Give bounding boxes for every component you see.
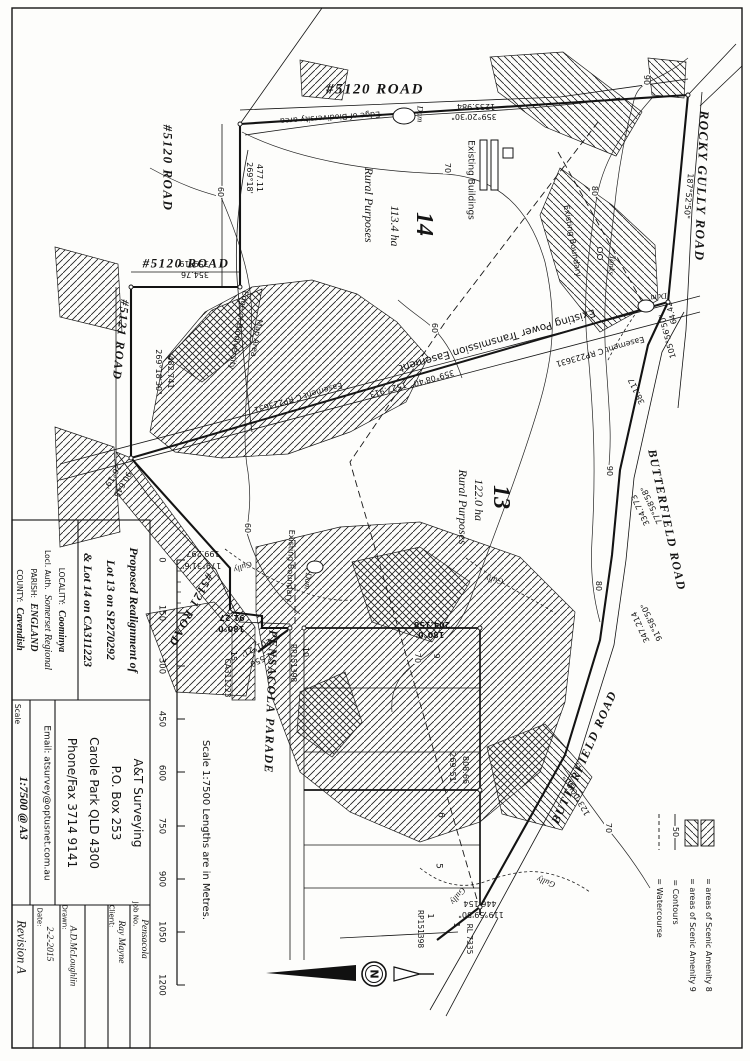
scale-bar-caption: Scale 1:7500 Lengths are in Metres.	[200, 740, 210, 920]
map-label: 180°0'	[216, 624, 245, 632]
map-label: #5120 ROAD	[162, 125, 175, 212]
scale-bar-tick-label: 1050	[157, 921, 166, 943]
map-label: 446.154	[463, 899, 496, 907]
job-value: Pensacola	[138, 919, 148, 959]
map-label: 60	[430, 322, 438, 334]
map-label: CA311223	[223, 659, 231, 698]
map-label: 359°19'	[177, 259, 209, 267]
map-label: 482.741	[166, 355, 174, 388]
map-label: 6	[436, 812, 445, 818]
map-label: 91.27	[219, 613, 244, 621]
client-value: Ray Mayne	[115, 921, 125, 964]
legend-symbols	[659, 814, 714, 850]
scale-bar-tick-label: 900	[157, 871, 166, 887]
map-label: #5120 ROAD	[326, 83, 424, 98]
map-label: 179°31'6"	[181, 561, 221, 569]
scale-bar-tick-label: 1200	[157, 974, 166, 996]
map-label: 1	[426, 913, 434, 918]
plan-title-line-2: Lot 13 on SP270292	[105, 560, 117, 660]
map-label: 119°59'50"	[458, 910, 504, 918]
legend-item-contours: = Contours	[671, 879, 679, 924]
parish-label: PARISH:	[29, 569, 38, 599]
survey-plan-sheet: #5120 ROAD#5120 ROAD#5120 ROAD#5121 ROAD…	[0, 0, 750, 1061]
drawn-label: Drawn:	[61, 904, 68, 929]
map-label: 122.0 ha	[473, 479, 485, 521]
map-label: 1233.984	[457, 102, 495, 110]
map-label: 80	[590, 185, 598, 197]
revision-value: Revision A	[15, 920, 28, 974]
map-label: 1	[452, 922, 460, 927]
map-label: 269°18'	[245, 162, 253, 194]
county-label: COUNTY:	[15, 569, 24, 602]
map-label: 80	[594, 580, 602, 592]
firm-name: A&T Surveying	[132, 758, 144, 847]
drawn-value: A.D.McLoughlin	[69, 926, 78, 987]
county-row: COUNTY: Cavendish	[14, 569, 30, 650]
date-value: 2-2-2015	[43, 927, 53, 962]
map-label: 10	[301, 647, 309, 657]
scale-bar-tick-label: 150	[157, 605, 166, 621]
firm-po-box: P.O. Box 253	[110, 766, 122, 841]
plan-title-line-3: & Lot 14 on CA311223	[82, 553, 94, 667]
local-auth-label: Locl. Auth.	[43, 550, 52, 590]
map-label: 269°18'30"	[154, 349, 162, 395]
scale-value: 1:7500 @ A3	[18, 776, 30, 840]
map-label: 14	[412, 212, 436, 236]
map-label: 808.66	[461, 756, 469, 784]
map-label: 70	[443, 162, 451, 174]
map-label: Rural Purposes	[457, 470, 469, 545]
map-label: 60	[216, 186, 224, 198]
scale-bar-tick-label: 300	[157, 658, 166, 674]
existing-buildings	[480, 140, 513, 190]
map-label: RP151398	[289, 644, 297, 682]
scale-label: Scale	[13, 704, 21, 724]
map-label: 180°0'	[416, 630, 445, 638]
firm-suburb: Carole Park QLD 4300	[88, 737, 100, 869]
map-label: 90	[642, 74, 650, 86]
map-label: 113.4 ha	[389, 205, 401, 246]
firm-phone: Phone/Fax 3714 9141	[66, 738, 78, 868]
north-arrow	[266, 962, 434, 986]
county-value: Cavendish	[14, 607, 25, 650]
map-label: Dam	[303, 572, 313, 589]
scale-bar-tick-label: 0	[157, 557, 166, 562]
legend-item-amenity-8: = areas of Scenic Amenity 8	[704, 878, 712, 992]
map-label: 5	[434, 863, 443, 869]
map-label: Gully	[484, 574, 504, 586]
map-label: RP151398	[416, 910, 424, 948]
scale-bar-tick-label: 450	[157, 711, 166, 727]
map-label: 9	[432, 653, 440, 658]
map-label: 477.11	[255, 164, 263, 192]
firm-email: Email: atsurvey@optusnet.com.au	[42, 725, 51, 880]
map-label: Dam	[416, 106, 425, 123]
client-label: Client:	[108, 905, 115, 928]
map-label: Rural Purposes	[363, 168, 375, 243]
parish-row: PARISH: ENGLAND	[28, 569, 44, 652]
map-label: 269°51'	[448, 752, 456, 784]
map-label: Tanks	[607, 255, 617, 275]
map-label: 70	[604, 822, 612, 834]
map-label: 354.76	[181, 270, 209, 278]
map-label: Dam	[650, 291, 668, 302]
map-label: Existing Buildings	[466, 140, 475, 220]
local-auth-row: Locl. Auth. Somerset Regional	[42, 550, 58, 670]
scale-bar-tick-label: 750	[157, 818, 166, 834]
map-label: 90	[605, 465, 613, 477]
legend-item-watercourse: = Watercourse	[655, 878, 663, 937]
map-label: 199.297	[186, 549, 219, 557]
map-label: 204.158	[414, 620, 450, 628]
map-label: RL 7335	[465, 924, 473, 955]
plan-title-line-1: Proposed Realignment of	[128, 547, 140, 672]
locality-row: LOCALITY: Coominya	[56, 568, 72, 653]
map-label: 70	[413, 652, 421, 664]
map-label: 359°20'30"	[451, 112, 497, 120]
map-label: 50	[671, 826, 679, 838]
map-label: 60	[243, 522, 251, 534]
hatch-amenity-8-swatch	[701, 820, 714, 846]
map-label: 13	[489, 485, 513, 509]
locality-label: LOCALITY:	[57, 568, 66, 605]
map-label: Existing Boundary	[285, 529, 296, 602]
hatch-amenity-9-swatch	[685, 820, 698, 846]
map-label: N	[369, 969, 380, 978]
scale-bar-tick-label: 600	[157, 764, 166, 780]
date-label: Date:	[36, 907, 43, 926]
legend-item-amenity-9: = areas of Scenic Amenity 9	[688, 878, 696, 992]
